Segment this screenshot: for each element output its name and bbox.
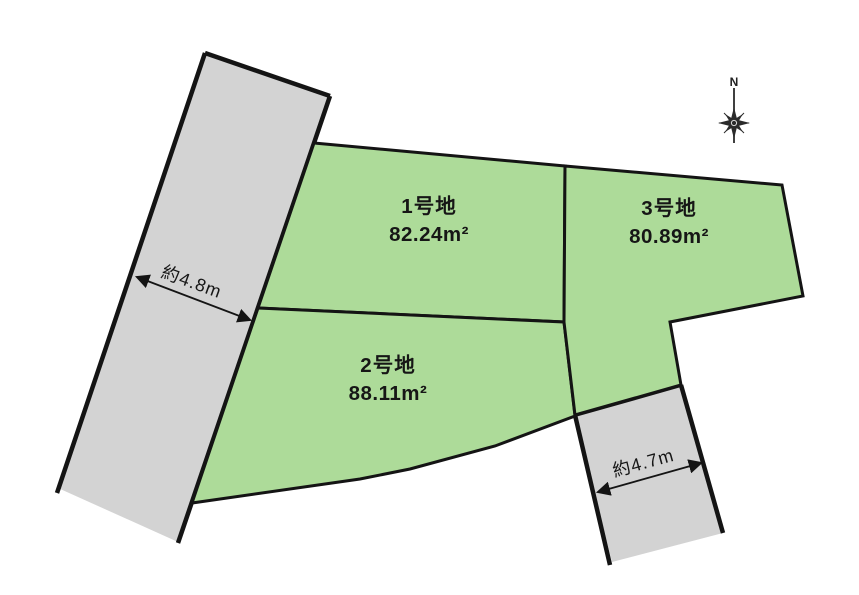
parcel-1-label: 1号地 82.24m² [389, 193, 469, 249]
parcel-3-area: 80.89m² [629, 223, 709, 251]
compass-north-label: N [730, 75, 739, 89]
parcel-3-label: 3号地 80.89m² [629, 195, 709, 251]
parcel-1-area: 82.24m² [389, 221, 469, 249]
plot-map-canvas: 1号地 82.24m² 2号地 88.11m² 3号地 80.89m² 約4.8… [0, 0, 859, 595]
parcel-3-name: 3号地 [629, 195, 709, 223]
road-bottom-right [575, 385, 723, 565]
parcel-2-name: 2号地 [349, 352, 428, 380]
parcel-2-area: 88.11m² [349, 380, 428, 408]
plot-map-drawing [0, 0, 859, 595]
compass-north-icon [716, 88, 751, 143]
parcel-1-name: 1号地 [389, 193, 469, 221]
parcel-2-label: 2号地 88.11m² [349, 352, 428, 408]
